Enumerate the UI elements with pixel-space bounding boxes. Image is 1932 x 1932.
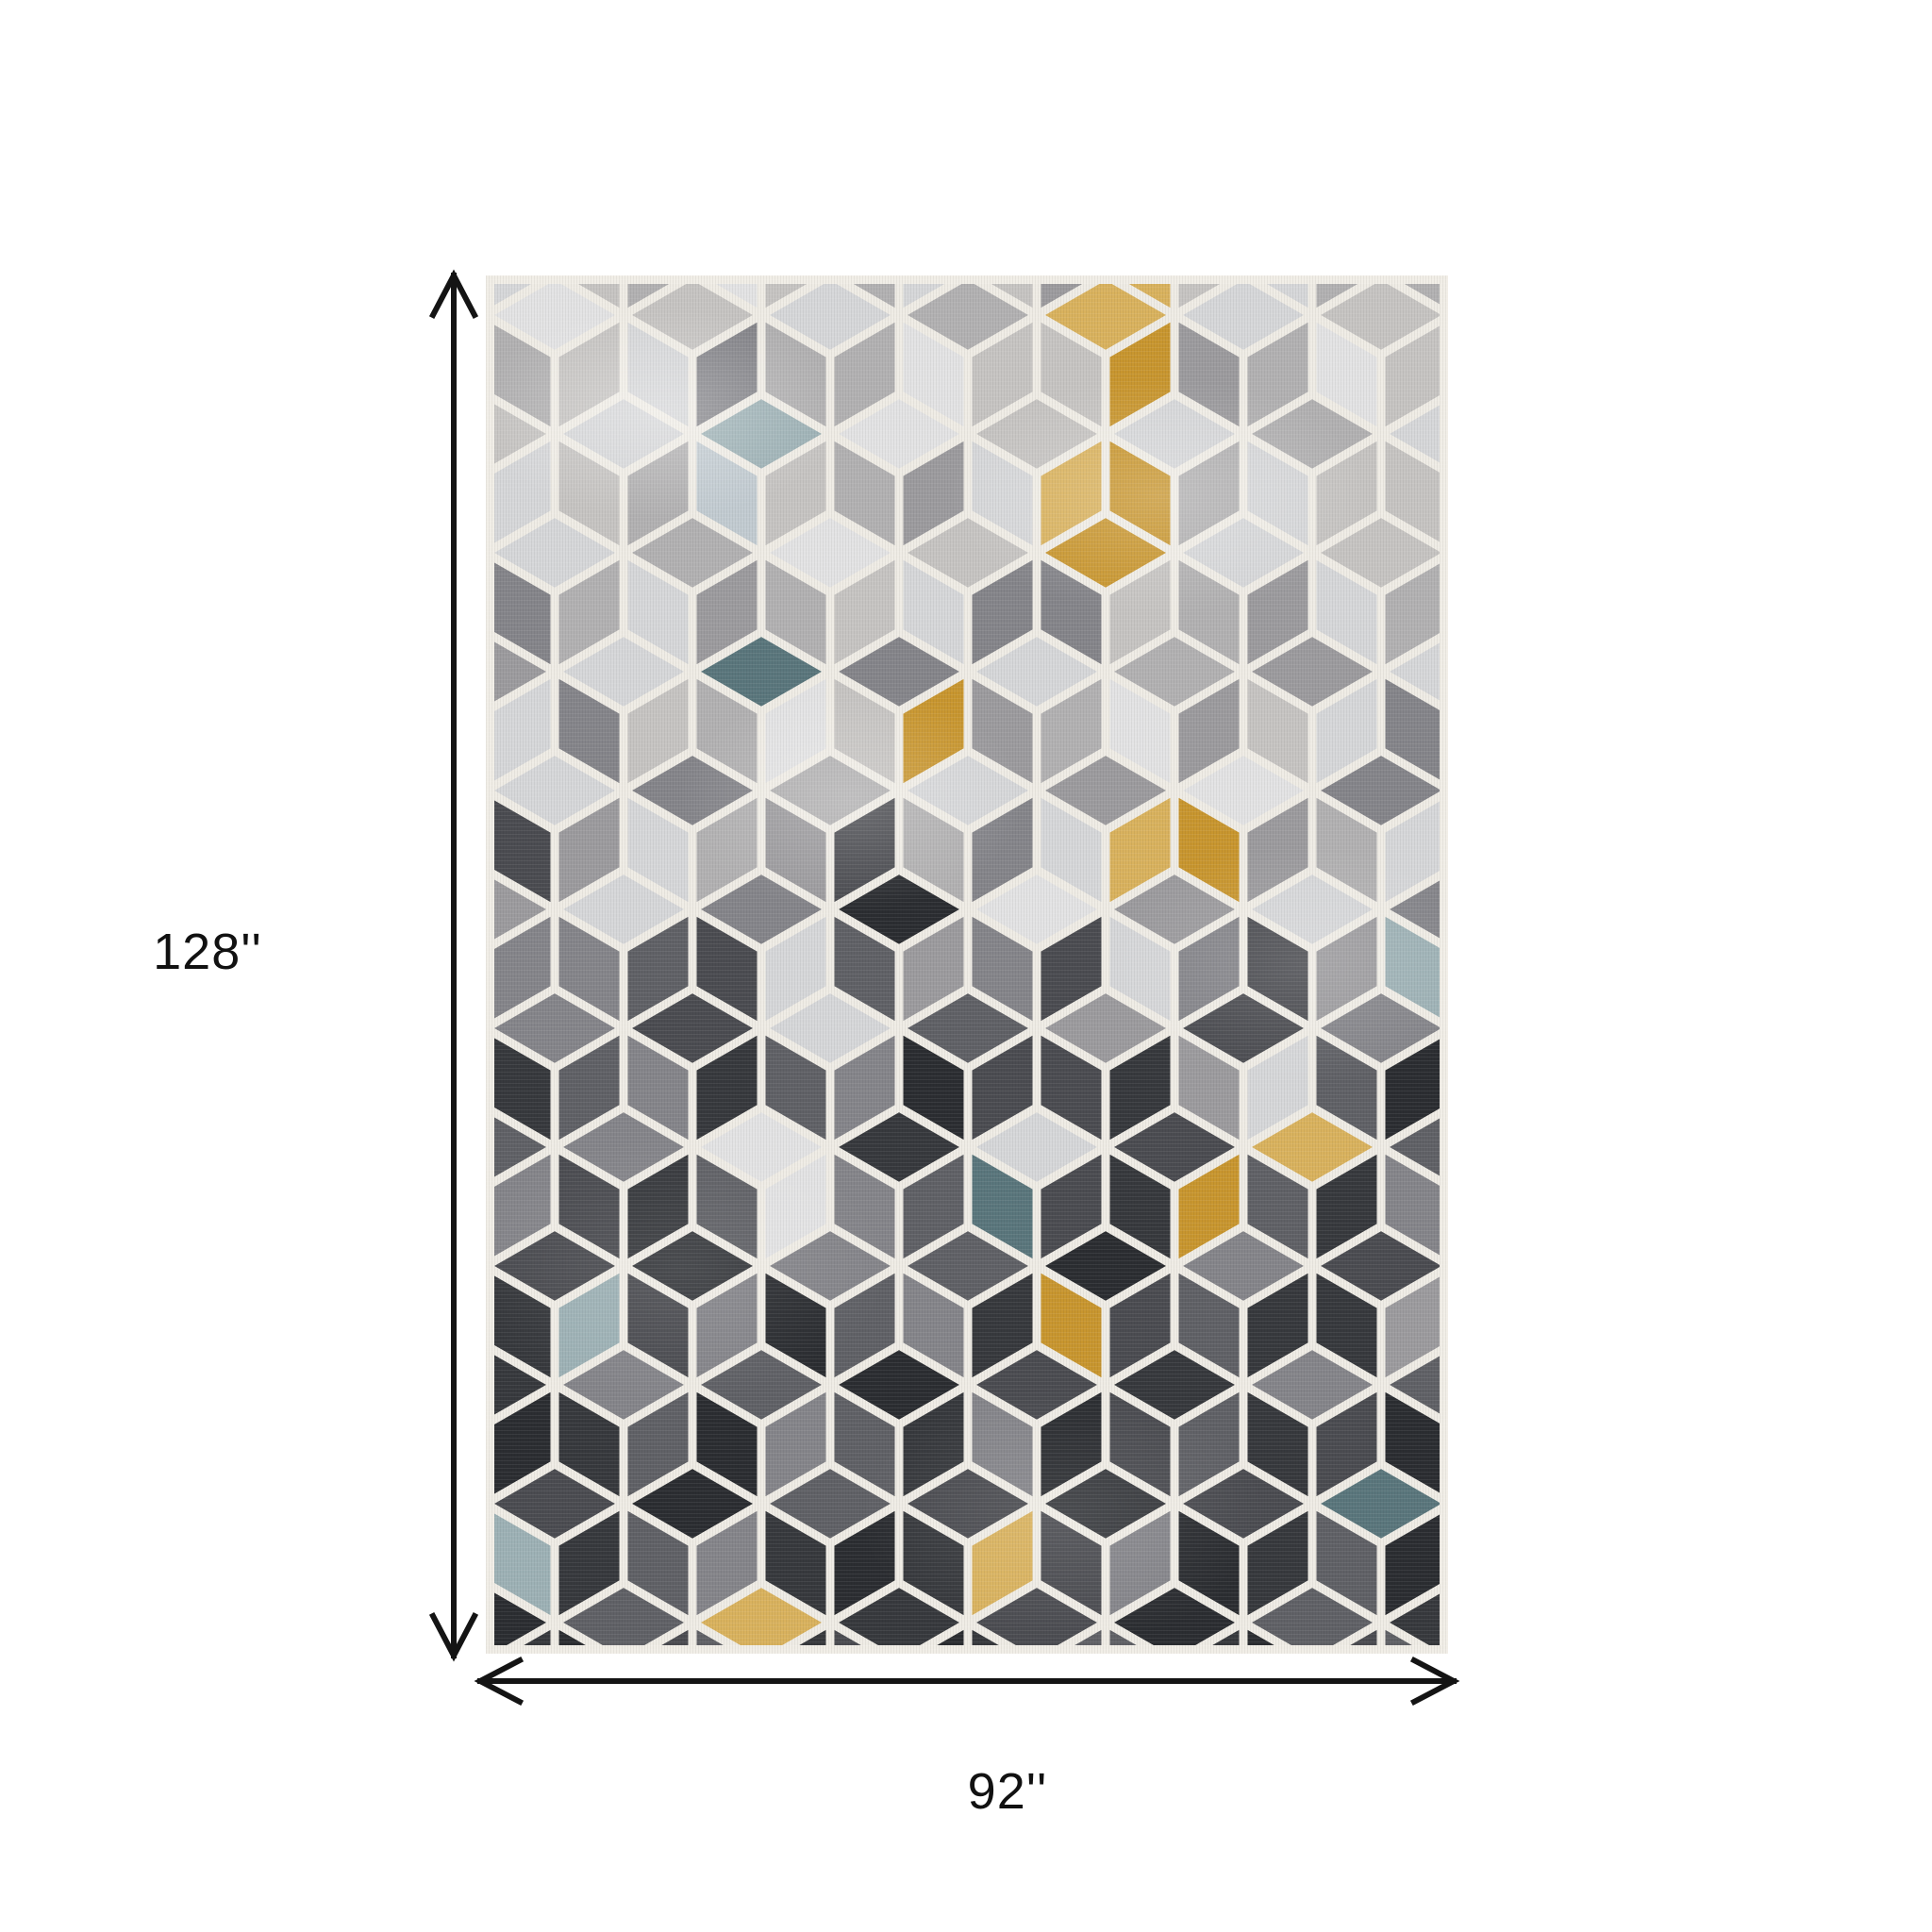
width-dimension-arrow xyxy=(480,1660,1454,1702)
height-dimension-label: 128'' xyxy=(104,923,311,981)
width-dimension-label: 92'' xyxy=(904,1762,1111,1821)
arrowhead-down-icon xyxy=(433,1616,475,1656)
arrowhead-right-icon xyxy=(1414,1660,1454,1702)
arrowhead-up-icon xyxy=(433,275,475,315)
arrowhead-left-icon xyxy=(480,1660,520,1702)
rug-image xyxy=(486,275,1448,1654)
rug-pattern xyxy=(486,275,1448,1654)
height-dimension-arrow xyxy=(433,275,475,1656)
product-image-canvas: 128'' 92'' xyxy=(0,0,1932,1932)
